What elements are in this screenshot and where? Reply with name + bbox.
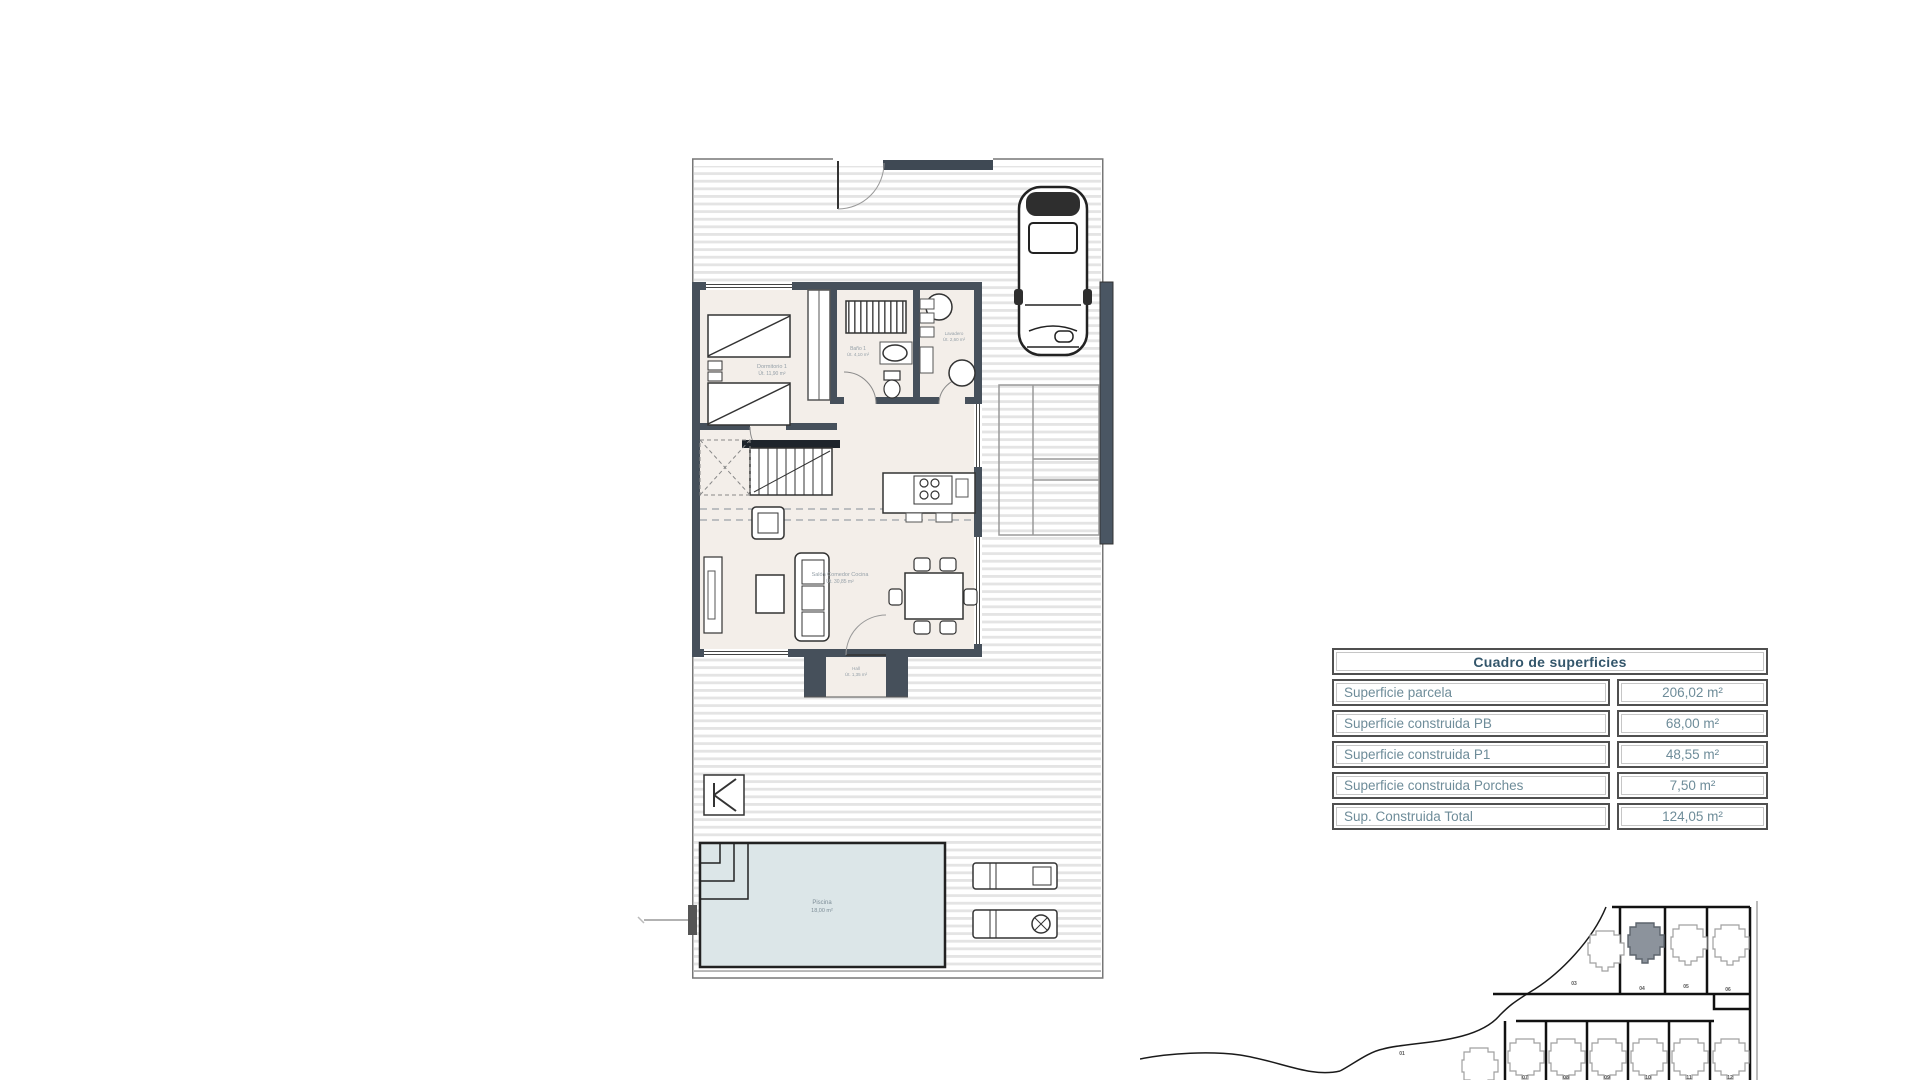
table-row: Sup. Construida Total 124,05 m² xyxy=(1332,803,1768,830)
toilet xyxy=(884,380,900,398)
row-value: 48,55 m² xyxy=(1617,741,1768,768)
tv-unit xyxy=(704,557,722,633)
table-row: Superficie construida PB 68,00 m² xyxy=(1332,710,1768,737)
car-icon xyxy=(1014,187,1092,355)
svg-text:Út. 2,60 m²: Út. 2,60 m² xyxy=(943,336,966,342)
row-value: 206,02 m² xyxy=(1617,679,1768,706)
row-value: 7,50 m² xyxy=(1617,772,1768,799)
svg-text:07: 07 xyxy=(1522,1075,1528,1080)
svg-text:03: 03 xyxy=(1571,981,1577,987)
table-row: Superficie construida P1 48,55 m² xyxy=(1332,741,1768,768)
armchair xyxy=(752,507,784,539)
pool-label: Piscina xyxy=(812,900,832,906)
shower xyxy=(846,301,906,333)
row-label: Superficie construida Porches xyxy=(1332,772,1610,799)
svg-text:05: 05 xyxy=(1683,984,1689,990)
svg-text:10: 10 xyxy=(1645,1075,1651,1080)
row-label: Superficie construida P1 xyxy=(1332,741,1610,768)
svg-text:Út. 1,35 m²: Út. 1,35 m² xyxy=(845,671,868,677)
bedroom-label: Dormitorio 1 xyxy=(757,364,787,370)
svg-text:04: 04 xyxy=(1639,986,1645,992)
floor-plan-drawing: Dormitorio 1 Út. 11,90 m² Baño 1 Út. 4,1… xyxy=(634,157,1114,982)
living-label: Salón Comedor Cocina xyxy=(812,572,870,578)
row-value: 68,00 m² xyxy=(1617,710,1768,737)
floor-plan: Dormitorio 1 Út. 11,90 m² Baño 1 Út. 4,1… xyxy=(634,157,1114,982)
surface-table: Cuadro de superficies Superficie parcela… xyxy=(1332,648,1768,834)
washbasin xyxy=(883,345,907,361)
pool-skimmer xyxy=(688,905,697,935)
hall-label: Hall xyxy=(852,666,860,671)
site-plan: 03 04 05 06 01 07 08 09 10 11 12 xyxy=(1140,893,1870,1080)
svg-text:01: 01 xyxy=(1399,1051,1405,1057)
svg-text:08: 08 xyxy=(1563,1075,1569,1080)
svg-text:09: 09 xyxy=(1604,1075,1610,1080)
highlighted-plot-house xyxy=(1628,923,1664,963)
row-label: Sup. Construida Total xyxy=(1332,803,1610,830)
row-label: Superficie parcela xyxy=(1332,679,1610,706)
north-mark xyxy=(704,775,744,815)
svg-text:Út. 11,90 m²: Út. 11,90 m² xyxy=(758,370,785,377)
wardrobe xyxy=(808,290,830,400)
svg-text:11: 11 xyxy=(1686,1075,1692,1080)
table-row: Superficie construida Porches 7,50 m² xyxy=(1332,772,1768,799)
svg-text:Út. 30,85 m²: Út. 30,85 m² xyxy=(826,578,854,585)
surface-table-title: Cuadro de superficies xyxy=(1332,648,1768,675)
laundry-label: Lavadero xyxy=(945,331,964,336)
boundary-wall-right xyxy=(1100,282,1113,544)
row-label: Superficie construida PB xyxy=(1332,710,1610,737)
table-row: Superficie parcela 206,02 m² xyxy=(1332,679,1768,706)
coffee-table xyxy=(756,575,784,613)
svg-text:06: 06 xyxy=(1725,987,1731,993)
svg-text:18,00 m²: 18,00 m² xyxy=(811,908,833,914)
svg-text:12: 12 xyxy=(1727,1075,1733,1080)
pool xyxy=(638,843,945,967)
site-plan-drawing: 03 04 05 06 01 07 08 09 10 11 12 xyxy=(1140,893,1870,1080)
svg-text:Út. 4,10 m²: Út. 4,10 m² xyxy=(847,351,870,357)
row-value: 124,05 m² xyxy=(1617,803,1768,830)
blueprint-page: Dormitorio 1 Út. 11,90 m² Baño 1 Út. 4,1… xyxy=(0,0,1920,1080)
